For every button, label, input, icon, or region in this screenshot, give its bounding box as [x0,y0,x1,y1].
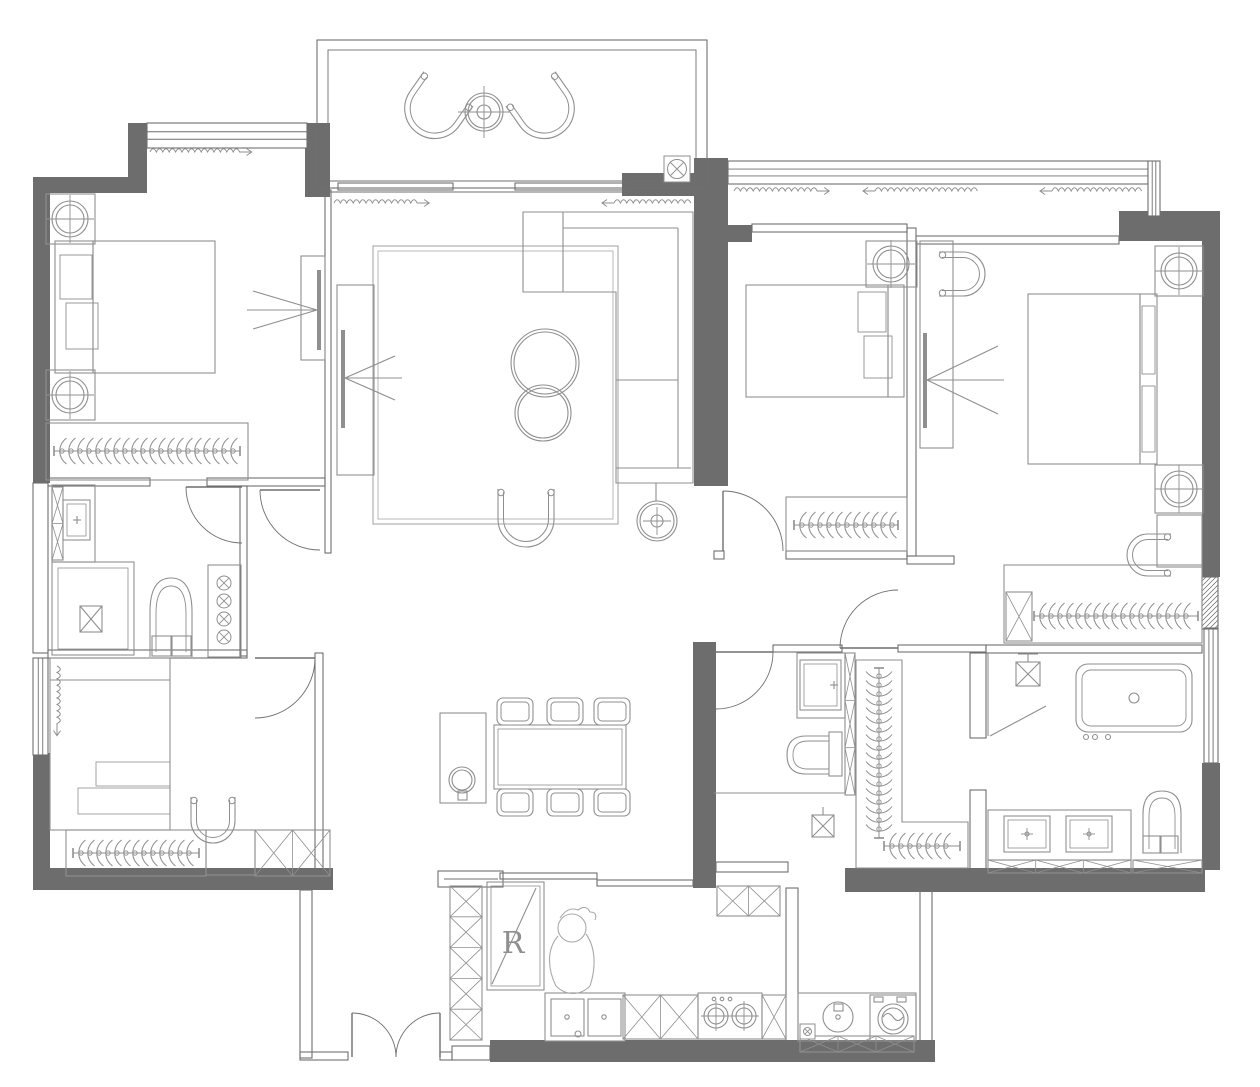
floor-plan-canvas: R [0,0,1260,1087]
masterbath-window [1204,628,1218,763]
dining-chair [594,789,630,816]
laundry-floor-drain [800,1024,815,1039]
wall-entry-column [694,196,728,486]
dining-chair [547,698,583,725]
dining-chair [497,789,533,816]
wall-top-left-block [128,123,147,193]
sink-counter [545,993,625,1041]
bedrooms-right-window [728,161,1148,184]
wall-entry-column-top [694,158,728,198]
bedroom4-window [33,658,48,755]
balcony-floor-drain [664,156,690,182]
tv-screen [317,270,321,350]
dining-chair [547,789,583,816]
wall-right-lower [1202,763,1220,870]
wall-left-upper [33,177,50,483]
floor-plan-svg: R [0,0,1260,1087]
bedroom1-bay-window [147,123,307,148]
right-corner-window [1148,161,1160,216]
dining-chair [497,698,533,725]
fridge-label: R [502,926,526,961]
wall-master-bottom [845,868,1205,892]
wall-bedroom2-step [728,225,752,242]
wall-right-upper [1202,230,1220,577]
fridge-label-text: R [502,926,526,961]
tv-screen [341,330,345,428]
wall-bottomleft-bottom [33,868,333,890]
dining-chair [594,698,630,725]
wall-left-lower [33,753,50,885]
wall-kitchen-bottom [490,1040,935,1062]
tv-screen [923,333,927,428]
wall-mid-vertical [693,642,716,888]
